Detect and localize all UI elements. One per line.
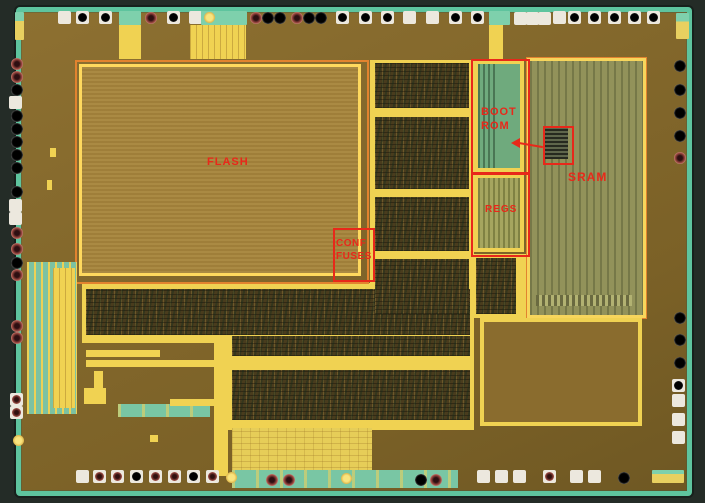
bond-pad (341, 473, 352, 484)
top-striped-block (190, 25, 246, 59)
bond-pad (674, 107, 686, 119)
bond-pad (676, 13, 689, 39)
boot-rom-arrowhead (511, 138, 520, 148)
bond-pad (250, 12, 262, 24)
bond-pad (538, 12, 551, 25)
bond-pad (11, 257, 23, 269)
bond-pad (674, 60, 686, 72)
bond-pad (471, 11, 484, 24)
bond-pad (11, 320, 23, 332)
bond-pad (495, 470, 508, 483)
routing-block (84, 388, 106, 404)
conf-fuses-label-line1: CONF (336, 238, 366, 249)
bond-pad (76, 470, 89, 483)
sram-block (527, 58, 646, 318)
bond-pad (588, 470, 601, 483)
regs-label: REGS (485, 203, 517, 217)
bond-pad (11, 84, 23, 96)
top-yellow-block (119, 25, 141, 59)
bond-pad (674, 84, 686, 96)
boot-rom-label: BOOT ROM (481, 105, 517, 133)
corner-structure (15, 12, 24, 40)
bond-pad (11, 149, 23, 161)
bond-pad (204, 12, 215, 23)
brown-filler-block (480, 318, 642, 426)
bond-pad (543, 470, 556, 483)
bond-pad (628, 11, 641, 24)
bond-pad (674, 312, 686, 324)
bond-pad (187, 470, 200, 483)
bond-pad (145, 12, 157, 24)
bond-pad (76, 11, 89, 24)
routing-trace (170, 399, 216, 406)
bond-pad (130, 470, 143, 483)
bond-pad (168, 470, 181, 483)
bond-pad (11, 243, 23, 255)
bond-pad (674, 357, 686, 369)
bond-pad (99, 11, 112, 24)
bond-pad (11, 136, 23, 148)
sram-annotation-box (543, 126, 574, 165)
bond-pad (9, 96, 22, 109)
bond-pad (618, 472, 630, 484)
bond-pad (262, 12, 274, 24)
bond-pad (647, 11, 660, 24)
bond-pad (283, 474, 295, 486)
analog-block-bottom (232, 428, 372, 474)
bond-pad (10, 393, 23, 406)
conf-fuses-label-line2: FUSES (336, 251, 372, 262)
bond-pad (672, 431, 685, 444)
bond-pad (58, 11, 71, 24)
bond-pad (13, 435, 24, 446)
bond-pad (336, 11, 349, 24)
bond-pad (11, 332, 23, 344)
bond-pad (381, 11, 394, 24)
logic-strip (232, 336, 470, 356)
bond-pad (359, 11, 372, 24)
bond-pad (149, 470, 162, 483)
bond-pad (403, 11, 416, 24)
routing-trace (86, 350, 160, 357)
die-speck (150, 435, 158, 442)
boot-rom-label-line1: BOOT (481, 106, 517, 118)
bond-pad (315, 12, 327, 24)
bond-pad (206, 470, 219, 483)
logic-block-large (232, 370, 470, 420)
bond-pad (11, 186, 23, 198)
bond-pad (489, 11, 510, 25)
bond-pad (672, 413, 685, 426)
flash-label: FLASH (207, 155, 249, 169)
bond-pad (226, 472, 237, 483)
die-photo: FLASH BOOT ROM REGS SRAM CONF FUSES (0, 0, 705, 503)
bond-pad (11, 162, 23, 174)
logic-block (375, 259, 469, 314)
flash-block-interior (79, 64, 361, 276)
bond-pad (11, 110, 23, 122)
bond-pad (119, 11, 141, 25)
bond-pad (167, 11, 180, 24)
bond-pad (652, 470, 684, 483)
bond-pad (449, 11, 462, 24)
bond-pad (415, 474, 427, 486)
sram-label: SRAM (568, 170, 607, 184)
bond-pad (674, 130, 686, 142)
logic-block (375, 197, 469, 251)
bond-pad (11, 269, 23, 281)
bond-pad (672, 379, 685, 392)
bond-pad (11, 58, 23, 70)
bond-pad (477, 470, 490, 483)
bond-pad (11, 123, 23, 135)
bond-pad (570, 470, 583, 483)
bond-pad (274, 12, 286, 24)
bond-pad (674, 334, 686, 346)
bond-pad (513, 470, 526, 483)
bond-pad (430, 474, 442, 486)
sram-footer-strip (536, 295, 632, 306)
bond-pad (11, 71, 23, 83)
die-speck (50, 148, 56, 157)
bond-pad (10, 406, 23, 419)
die-speck (47, 180, 52, 190)
logic-block (476, 258, 516, 314)
logic-block (375, 117, 469, 189)
bond-pad (9, 212, 22, 225)
bond-pad (672, 394, 685, 407)
bond-pad (291, 12, 303, 24)
bond-pad (674, 152, 686, 164)
bond-pad (553, 11, 566, 24)
bond-pad (568, 11, 581, 24)
bond-pad (608, 11, 621, 24)
bond-pad (93, 470, 106, 483)
logic-block (375, 63, 469, 108)
boot-rom-label-line2: ROM (481, 120, 510, 132)
bond-pad (303, 12, 315, 24)
bond-pad (426, 11, 439, 24)
bond-pad (11, 227, 23, 239)
bond-pad (266, 474, 278, 486)
conf-fuses-label: CONF FUSES (336, 237, 372, 263)
bond-pad (111, 470, 124, 483)
power-rail (214, 340, 228, 476)
analog-strip-left-inner (53, 268, 75, 408)
bond-pad (588, 11, 601, 24)
bond-pad (9, 199, 22, 212)
routing-trace (86, 360, 216, 367)
